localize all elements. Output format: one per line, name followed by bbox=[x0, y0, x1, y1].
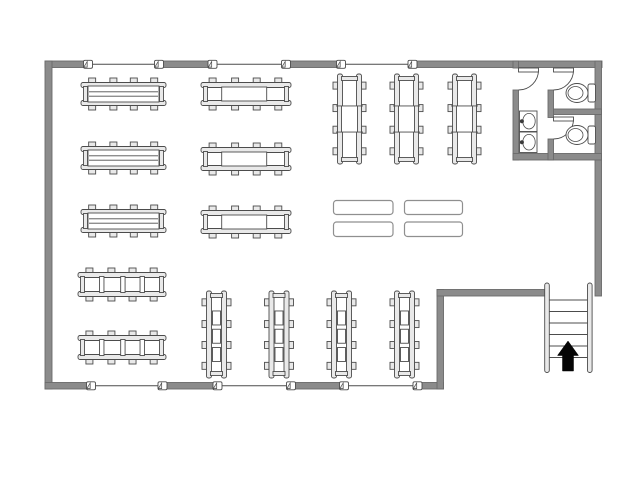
shelf-bracket bbox=[151, 106, 158, 111]
shelf-bracket bbox=[289, 341, 294, 348]
rack-shelf-unit bbox=[78, 331, 166, 364]
wall-right bbox=[595, 61, 602, 296]
shelf-post bbox=[399, 372, 411, 376]
door-leaf bbox=[554, 117, 574, 121]
shelf-post bbox=[84, 214, 88, 229]
shelf-box bbox=[213, 329, 221, 343]
shelf-box bbox=[342, 106, 358, 132]
shelf-bracket bbox=[390, 299, 395, 306]
shelf-bracket bbox=[89, 142, 96, 147]
shelf-bracket bbox=[129, 297, 136, 302]
shelf-bracket bbox=[327, 362, 332, 369]
restroom-wall-left bbox=[513, 90, 519, 160]
shelf-bracket bbox=[130, 170, 137, 175]
restroom-wall-left bbox=[513, 61, 519, 68]
shelf-bracket bbox=[89, 170, 96, 175]
shelf-bracket bbox=[86, 360, 93, 365]
shelf-bracket bbox=[130, 205, 137, 210]
shelf-bracket bbox=[289, 321, 294, 328]
shelf-post bbox=[160, 277, 164, 293]
rack-shelf-unit bbox=[78, 268, 166, 301]
shelf-bracket bbox=[151, 78, 158, 83]
shelf-bracket bbox=[110, 205, 117, 210]
gondola-shelf-unit bbox=[201, 206, 291, 238]
shelf-rail bbox=[269, 291, 274, 378]
shelf-bracket bbox=[415, 362, 420, 369]
shelf-bracket bbox=[275, 143, 282, 148]
shelf-slat bbox=[121, 340, 125, 356]
shelf-bracket bbox=[150, 360, 157, 365]
shelf-post bbox=[399, 294, 411, 298]
shelf-post bbox=[273, 372, 285, 376]
rack-shelf-unit bbox=[390, 291, 419, 378]
shelf-rail bbox=[284, 291, 289, 378]
shelf-bracket bbox=[110, 170, 117, 175]
sink-faucet bbox=[520, 140, 524, 144]
restroom-wall-bottom bbox=[513, 154, 602, 161]
shelf-bracket bbox=[150, 268, 157, 273]
shelf-bracket bbox=[232, 234, 239, 239]
shelf-slat bbox=[121, 277, 125, 293]
shelf-box bbox=[275, 348, 283, 362]
shelf-bracket bbox=[253, 143, 260, 148]
shelf-box bbox=[401, 329, 409, 343]
display-table bbox=[334, 222, 394, 237]
shelf-bracket bbox=[232, 206, 239, 211]
shelf-bracket bbox=[110, 142, 117, 147]
shelf-post bbox=[285, 152, 289, 167]
shelf-bracket bbox=[327, 341, 332, 348]
shelf-bracket bbox=[202, 321, 207, 328]
shelf-box bbox=[275, 311, 283, 325]
shelf-bracket bbox=[275, 106, 282, 111]
wall-left bbox=[45, 61, 52, 389]
shelf-bracket bbox=[352, 341, 357, 348]
shelf-slat bbox=[100, 340, 104, 356]
shelf-bracket bbox=[202, 341, 207, 348]
shelf-bracket bbox=[415, 341, 420, 348]
shelf-bracket bbox=[227, 341, 232, 348]
restroom-wall-middle bbox=[548, 90, 554, 118]
gondola-shelf-unit bbox=[448, 74, 481, 164]
shelf-slat bbox=[100, 277, 104, 293]
shelf-bracket bbox=[390, 362, 395, 369]
shelf-box bbox=[275, 329, 283, 343]
shelf-bracket bbox=[352, 362, 357, 369]
shelf-bracket bbox=[108, 268, 115, 273]
shelf-box bbox=[88, 86, 159, 102]
shelf-box bbox=[222, 87, 267, 101]
door-leaf bbox=[519, 68, 539, 72]
shelf-bracket bbox=[477, 82, 482, 89]
shelf-bracket bbox=[151, 233, 158, 238]
shelf-post bbox=[342, 158, 358, 162]
shelf-post bbox=[285, 215, 289, 230]
shelf-bracket bbox=[265, 341, 270, 348]
shelf-rail bbox=[395, 291, 400, 378]
gondola-shelf-unit bbox=[81, 142, 166, 174]
shelf-box bbox=[222, 152, 267, 166]
gondola-shelf-unit bbox=[81, 205, 166, 237]
shelf-bracket bbox=[275, 171, 282, 176]
shelf-bracket bbox=[227, 321, 232, 328]
shelf-bracket bbox=[390, 148, 395, 155]
shelf-bracket bbox=[129, 331, 136, 336]
restroom-stall-divider bbox=[554, 109, 602, 115]
gondola-shelf-unit bbox=[201, 143, 291, 175]
shelf-box bbox=[401, 311, 409, 325]
display-table bbox=[405, 222, 463, 237]
shelf-box bbox=[88, 213, 159, 229]
shelf-bracket bbox=[151, 142, 158, 147]
shelf-bracket bbox=[129, 268, 136, 273]
stair-rail bbox=[545, 283, 550, 373]
gondola-shelf-unit bbox=[390, 74, 423, 164]
shelf-bracket bbox=[327, 299, 332, 306]
shelf-post bbox=[160, 214, 164, 229]
shelf-post bbox=[160, 340, 164, 356]
shelf-bracket bbox=[130, 142, 137, 147]
shelf-post bbox=[84, 151, 88, 166]
shelf-bracket bbox=[151, 170, 158, 175]
rack-shelf-unit bbox=[265, 291, 294, 378]
shelf-bracket bbox=[265, 321, 270, 328]
shelf-bracket bbox=[275, 234, 282, 239]
shelf-rail bbox=[332, 291, 337, 378]
shelf-bracket bbox=[289, 362, 294, 369]
shelf-bracket bbox=[110, 233, 117, 238]
shelf-post bbox=[399, 158, 415, 162]
shelf-rail bbox=[222, 291, 227, 378]
shelf-post bbox=[457, 158, 473, 162]
shelf-bracket bbox=[108, 331, 115, 336]
shelf-post bbox=[336, 372, 348, 376]
shelf-bracket bbox=[110, 78, 117, 83]
shelf-bracket bbox=[362, 82, 367, 89]
shelf-bracket bbox=[390, 82, 395, 89]
shelf-bracket bbox=[202, 362, 207, 369]
shelf-bracket bbox=[151, 205, 158, 210]
shelf-bracket bbox=[209, 206, 216, 211]
shelf-box bbox=[338, 311, 346, 325]
shelf-bracket bbox=[333, 82, 338, 89]
door-swing-arc bbox=[519, 70, 539, 90]
shelf-bracket bbox=[110, 106, 117, 111]
shelf-bracket bbox=[477, 148, 482, 155]
shelf-post bbox=[285, 87, 289, 102]
shelf-bracket bbox=[362, 148, 367, 155]
shelf-bracket bbox=[352, 299, 357, 306]
shelf-bracket bbox=[232, 106, 239, 111]
wall-notch-horizontal bbox=[437, 290, 546, 297]
shelf-bracket bbox=[419, 82, 424, 89]
shelf-bracket bbox=[86, 297, 93, 302]
shelf-bracket bbox=[129, 360, 136, 365]
toilet-tank bbox=[588, 126, 596, 144]
shelf-box bbox=[213, 348, 221, 362]
shelf-bracket bbox=[448, 148, 453, 155]
shelf-post bbox=[204, 215, 208, 230]
shelf-bracket bbox=[130, 78, 137, 83]
shelf-box bbox=[399, 106, 415, 132]
shelf-bracket bbox=[253, 78, 260, 83]
shelf-bracket bbox=[108, 360, 115, 365]
shelf-box bbox=[338, 348, 346, 362]
shelf-bracket bbox=[419, 148, 424, 155]
shelf-bracket bbox=[209, 78, 216, 83]
rack-shelf-unit bbox=[202, 291, 231, 378]
shelf-bracket bbox=[352, 321, 357, 328]
shelf-bracket bbox=[253, 171, 260, 176]
shelf-bracket bbox=[89, 106, 96, 111]
shelf-slat bbox=[140, 277, 144, 293]
floor-plan-page bbox=[0, 0, 640, 480]
door-leaf bbox=[554, 68, 574, 72]
shelf-bracket bbox=[390, 321, 395, 328]
shelf-bracket bbox=[209, 106, 216, 111]
shelf-bracket bbox=[448, 82, 453, 89]
shelf-bracket bbox=[275, 78, 282, 83]
toilet-tank bbox=[588, 84, 596, 102]
shelf-post bbox=[160, 151, 164, 166]
shelf-bracket bbox=[415, 299, 420, 306]
shelf-post bbox=[342, 77, 358, 81]
sink-faucet bbox=[520, 119, 524, 123]
shelf-bracket bbox=[327, 321, 332, 328]
shelf-bracket bbox=[390, 341, 395, 348]
shelf-bracket bbox=[89, 78, 96, 83]
shelf-rail bbox=[410, 291, 415, 378]
shelf-rail bbox=[347, 291, 352, 378]
shelf-post bbox=[81, 277, 85, 293]
shelf-bracket bbox=[130, 233, 137, 238]
gondola-shelf-unit bbox=[333, 74, 366, 164]
shelf-slat bbox=[140, 340, 144, 356]
shelf-bracket bbox=[253, 206, 260, 211]
shelf-post bbox=[399, 77, 415, 81]
shelf-box bbox=[88, 150, 159, 166]
shelf-bracket bbox=[108, 297, 115, 302]
shelf-bracket bbox=[415, 321, 420, 328]
shelf-bracket bbox=[275, 206, 282, 211]
shelf-bracket bbox=[86, 268, 93, 273]
shelf-bracket bbox=[209, 234, 216, 239]
shelf-bracket bbox=[86, 331, 93, 336]
shelf-bracket bbox=[265, 362, 270, 369]
shelf-box bbox=[457, 106, 473, 132]
shelf-bracket bbox=[209, 143, 216, 148]
shelf-post bbox=[160, 87, 164, 102]
shelf-box bbox=[338, 329, 346, 343]
shelf-rail bbox=[207, 291, 212, 378]
shelf-box bbox=[213, 311, 221, 325]
shelf-bracket bbox=[333, 148, 338, 155]
shelf-box bbox=[222, 215, 267, 229]
floor-plan bbox=[0, 0, 640, 480]
wall-notch-vertical bbox=[437, 290, 444, 390]
shelf-post bbox=[204, 152, 208, 167]
shelf-bracket bbox=[209, 171, 216, 176]
shelf-bracket bbox=[232, 78, 239, 83]
rack-shelf-unit bbox=[327, 291, 356, 378]
shelf-bracket bbox=[227, 362, 232, 369]
up-arrow-icon bbox=[558, 341, 579, 371]
shelf-bracket bbox=[150, 297, 157, 302]
stair-rail bbox=[588, 283, 593, 373]
shelf-bracket bbox=[89, 205, 96, 210]
restroom-wall-middle bbox=[548, 139, 554, 160]
shelf-post bbox=[81, 340, 85, 356]
shelf-bracket bbox=[150, 331, 157, 336]
gondola-shelf-unit bbox=[81, 78, 166, 110]
display-table bbox=[405, 201, 463, 215]
shelf-post bbox=[211, 294, 223, 298]
display-table bbox=[334, 201, 394, 215]
shelf-post bbox=[336, 294, 348, 298]
shelf-bracket bbox=[89, 233, 96, 238]
shelf-bracket bbox=[232, 171, 239, 176]
shelf-post bbox=[204, 87, 208, 102]
shelf-post bbox=[84, 87, 88, 102]
shelf-bracket bbox=[289, 299, 294, 306]
shelf-bracket bbox=[265, 299, 270, 306]
shelf-box bbox=[401, 348, 409, 362]
shelf-bracket bbox=[227, 299, 232, 306]
shelf-bracket bbox=[232, 143, 239, 148]
shelf-post bbox=[273, 294, 285, 298]
shelf-post bbox=[211, 372, 223, 376]
shelf-bracket bbox=[253, 106, 260, 111]
gondola-shelf-unit bbox=[201, 78, 291, 110]
shelf-bracket bbox=[202, 299, 207, 306]
shelf-bracket bbox=[253, 234, 260, 239]
shelf-post bbox=[457, 77, 473, 81]
shelf-bracket bbox=[130, 106, 137, 111]
